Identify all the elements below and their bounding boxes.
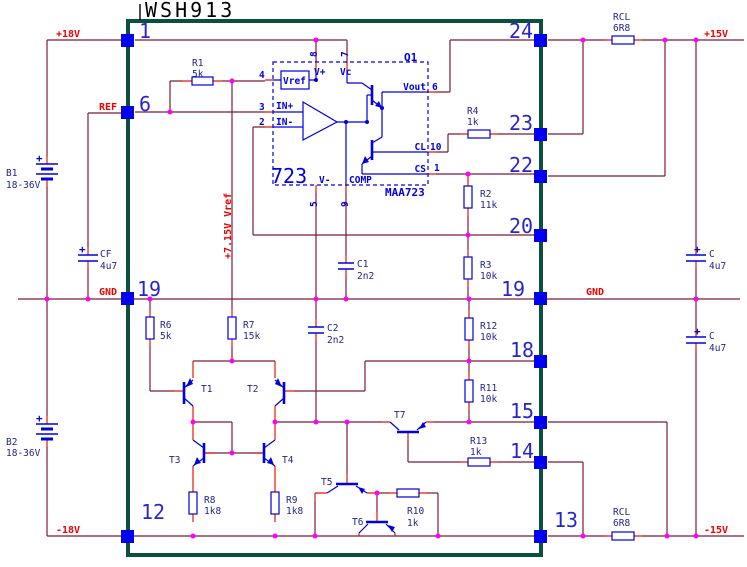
pin-square-12 [121, 530, 134, 543]
resistor-body-R12 [465, 318, 473, 340]
ic-pin-num-2: 2 [259, 117, 265, 128]
pin-number-12: 12 [141, 500, 165, 524]
label-C-right-top-value: 4u7 [709, 261, 726, 272]
label-RCL-top-name: RCL [613, 12, 630, 23]
ic-pin-name-in-plus: IN+ [276, 101, 293, 112]
ic-pin-num-5: 5 [309, 201, 320, 207]
ic-pin-num-1: 1 [434, 163, 440, 174]
label-C2-value: 2n2 [327, 335, 344, 346]
ic-pin-name-vminus: V- [319, 175, 330, 186]
net-label-plus18v: +18V [56, 29, 80, 40]
pin-square-19-left [121, 292, 134, 305]
label-C1-value: 2n2 [357, 271, 374, 282]
B1-plus-icon: + [36, 152, 43, 165]
label-T7: T7 [394, 410, 405, 421]
label-B2-name: B2 [6, 437, 17, 448]
label-RCL-top-value: 6R8 [613, 23, 630, 34]
resistor-body-R3 [464, 257, 472, 279]
net-label-vref-rail: +7.15V Vref [223, 193, 234, 259]
ic-pin-num-7: 7 [340, 51, 351, 57]
net-label-gnd-left: GND [99, 287, 117, 298]
ic-pin-name-cs: CS [415, 164, 427, 175]
ic-pin-num-3: 3 [259, 102, 265, 113]
pin-number-15: 15 [510, 399, 534, 423]
label-T4: T4 [282, 455, 294, 466]
capacitor-C2 [308, 327, 324, 333]
pin-square-19-right [534, 292, 547, 305]
label-R10-name: R10 [407, 506, 424, 517]
label-C-right-bottom-value: 4u7 [709, 343, 726, 354]
label-C-right-top-name: C [709, 249, 715, 260]
resistor-body-R6 [146, 317, 154, 339]
label-R9-value: 1k8 [286, 506, 303, 517]
resistor-body-R10 [397, 489, 419, 497]
label-CF-name: CF [100, 249, 112, 260]
label-R3-name: R3 [480, 260, 491, 271]
label-R3-value: 10k [480, 271, 497, 282]
label-R12-name: R12 [480, 321, 497, 332]
label-T6: T6 [352, 517, 364, 528]
ic-pin-num-8: 8 [309, 51, 320, 57]
ic-junction [314, 78, 318, 82]
pin-square-14 [534, 456, 547, 469]
pin-square-23 [534, 128, 547, 141]
label-CF-value: 4u7 [100, 261, 117, 272]
pin-number-19-left: 19 [137, 277, 161, 301]
ic-junction [344, 120, 348, 124]
ic-pin-name-vc: Vc [340, 67, 351, 78]
pin-number-24: 24 [509, 19, 533, 43]
ic-pin-name-in-minus: IN- [276, 117, 293, 128]
pin-square-1 [121, 34, 134, 47]
schematic-canvas: WSH913 +18V REF GND -18V GND +15V -15V +… [0, 0, 747, 567]
resistor-body-RCL-top [612, 36, 634, 44]
opamp-triangle [303, 102, 337, 140]
label-R8-name: R8 [204, 495, 216, 506]
label-T5: T5 [321, 477, 332, 488]
pin-number-18: 18 [510, 338, 534, 362]
ic-pin-num-10: 10 [430, 142, 442, 153]
label-C-right-bottom-name: C [709, 331, 715, 342]
module-pins [121, 34, 547, 543]
label-R7-name: R7 [243, 320, 254, 331]
T5-emitter-arrow-icon [358, 487, 365, 494]
label-B1-name: B1 [6, 168, 18, 179]
label-R9-name: R9 [286, 495, 298, 506]
label-B2-value: 18-36V [6, 448, 41, 459]
pin-number-1: 1 [139, 19, 151, 43]
net-label-minus18v: -18V [56, 525, 80, 536]
ic-pin-name-vref: Vref [283, 76, 306, 87]
module-outline-box [128, 21, 541, 555]
label-R2-value: 11k [480, 200, 497, 211]
label-R1-value: 5k [192, 69, 204, 80]
pin-number-6: 6 [139, 92, 151, 116]
label-R12-value: 10k [480, 332, 497, 343]
pin-square-20 [534, 229, 547, 242]
label-C2-name: C2 [327, 323, 338, 334]
label-R6-name: R6 [160, 320, 172, 331]
net-label-minus15v: -15V [704, 525, 728, 536]
pin-square-24 [534, 34, 547, 47]
pin-number-22: 22 [509, 153, 533, 177]
ic-pin-name-vout: Vout [403, 82, 426, 93]
pin-number-19-right: 19 [501, 277, 525, 301]
label-T3: T3 [169, 455, 180, 466]
label-R10-value: 1k [407, 518, 419, 529]
capacitor-C1 [338, 263, 354, 269]
label-R11-name: R11 [480, 383, 497, 394]
pin-square-6 [121, 106, 134, 119]
pin-square-18 [534, 355, 547, 368]
net-label-gnd-right: GND [586, 287, 604, 298]
ic-pin-num-9: 9 [340, 201, 351, 207]
net-label-plus15v: +15V [704, 29, 728, 40]
ic-junction [380, 106, 384, 110]
label-R1-name: R1 [192, 58, 204, 69]
label-R4-name: R4 [467, 106, 479, 117]
ic-pin-num-4: 4 [259, 70, 265, 81]
resistor-body-R13 [468, 458, 490, 466]
T6-emitter-arrow-icon [388, 525, 395, 532]
ic-pin-num-6: 6 [432, 82, 438, 93]
label-R8-value: 1k8 [204, 506, 221, 517]
resistor-body-RCL-bottom [612, 532, 634, 540]
ic-designator: Q1 [404, 51, 418, 64]
B2-plus-icon: + [36, 412, 43, 425]
pin-number-20: 20 [509, 214, 533, 238]
label-R13-name: R13 [470, 436, 487, 447]
pin-square-15 [534, 416, 547, 429]
label-RCL-bottom-value: 6R8 [613, 518, 630, 529]
label-R4-value: 1k [467, 117, 479, 128]
label-R11-value: 10k [480, 394, 497, 405]
label-R2-name: R2 [480, 189, 491, 200]
ic-junction [365, 120, 369, 124]
resistor-body-R2 [464, 186, 472, 208]
ic-big-label: 723 [271, 164, 307, 188]
label-C1-name: C1 [357, 259, 369, 270]
C-right-top-plus-icon: + [694, 243, 701, 256]
label-T2: T2 [247, 384, 258, 395]
resistor-body-R4 [468, 130, 490, 138]
transistor-bars [184, 382, 419, 522]
ic-part-number: MAA723 [385, 186, 425, 199]
resistor-body-R7 [228, 317, 236, 339]
label-T1: T1 [201, 384, 213, 395]
pin-number-23: 23 [509, 111, 533, 135]
pin-square-13 [534, 530, 547, 543]
pin-number-14: 14 [510, 439, 534, 463]
page-title: WSH913 [145, 0, 235, 22]
ic-pin-name-comp: COMP [349, 175, 372, 186]
T1-emitter-arrow-icon [186, 378, 193, 387]
label-B1-value: 18-36V [6, 180, 41, 191]
label-R13-value: 1k [470, 447, 482, 458]
ic-pin-name-vplus: V+ [314, 67, 326, 78]
resistor-body-R8 [189, 492, 197, 514]
pin-number-13: 13 [554, 508, 578, 532]
T2-emitter-arrow-icon [275, 378, 282, 387]
label-R6-value: 5k [160, 331, 172, 342]
pin-square-22 [534, 170, 547, 183]
ic-pin-name-cl: CL [415, 142, 427, 153]
schematic-page: WSH913 +18V REF GND -18V GND +15V -15V +… [0, 0, 747, 567]
resistor-body-R11 [465, 380, 473, 402]
label-RCL-bottom-name: RCL [613, 507, 630, 518]
resistor-body-R9 [271, 492, 279, 514]
CF-plus-icon: + [79, 243, 86, 256]
C-right-bottom-plus-icon: + [694, 325, 701, 338]
net-label-ref: REF [99, 102, 117, 113]
label-R7-value: 15k [243, 331, 260, 342]
